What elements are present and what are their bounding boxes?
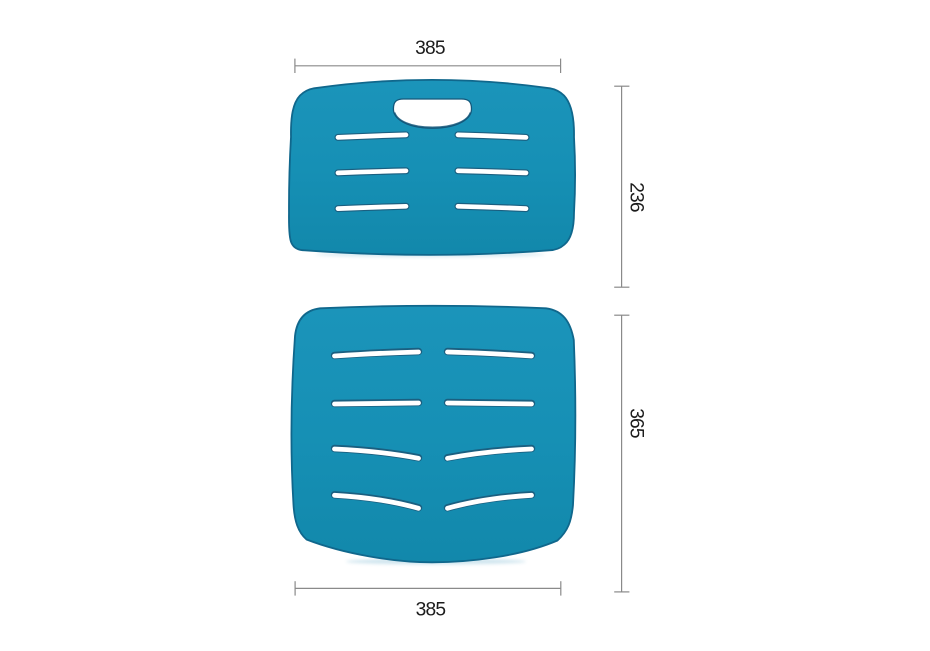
svg-text:385: 385 (415, 38, 445, 59)
svg-text:236: 236 (626, 182, 647, 212)
svg-text:365: 365 (626, 408, 647, 438)
svg-text:385: 385 (416, 599, 446, 620)
